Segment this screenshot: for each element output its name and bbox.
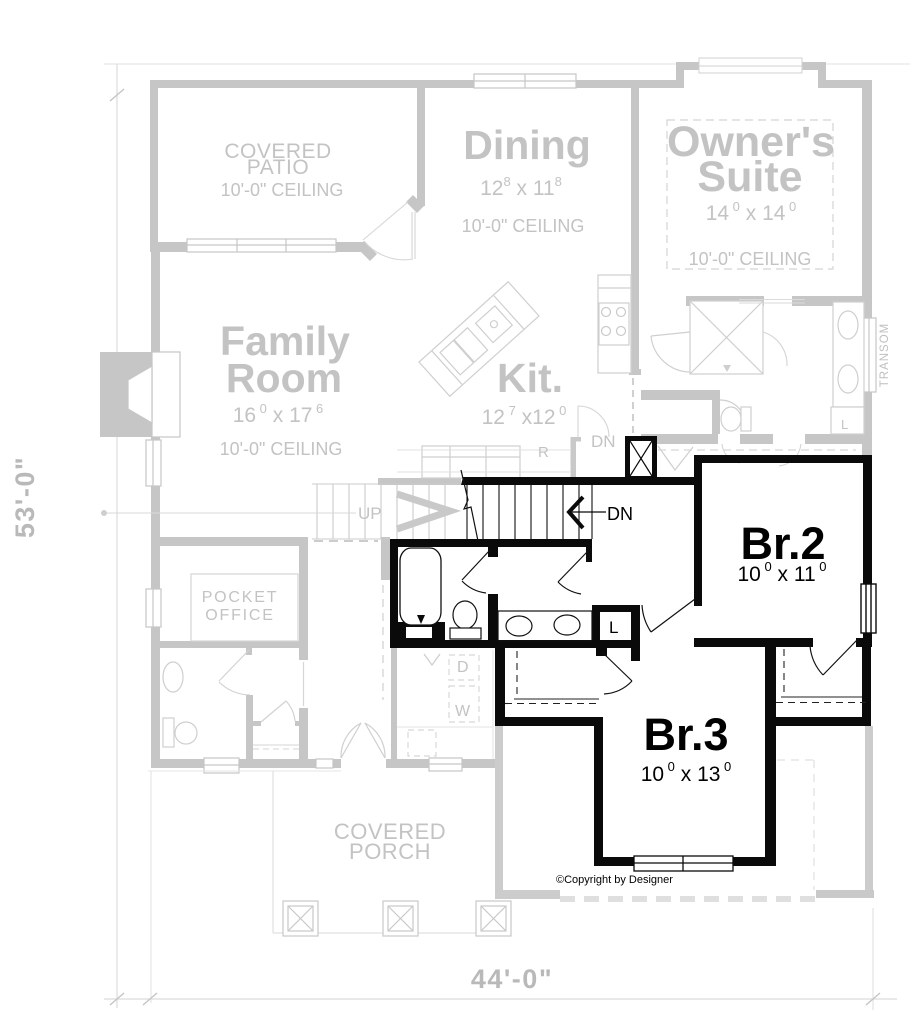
svg-text:10 0 x 13 0: 10 0 x 13 0 bbox=[641, 759, 732, 786]
svg-text:©Copyright by Designer: ©Copyright by Designer bbox=[556, 874, 673, 886]
svg-text:16 0 x 17 6: 16 0 x 17 6 bbox=[233, 401, 324, 427]
svg-text:UP: UP bbox=[358, 504, 382, 523]
svg-text:L: L bbox=[841, 417, 848, 432]
svg-text:TRANSOM: TRANSOM bbox=[879, 323, 891, 388]
svg-text:10'-0" CEILING: 10'-0" CEILING bbox=[689, 249, 812, 269]
svg-text:44'-0": 44'-0" bbox=[471, 964, 553, 994]
svg-text:14 0 x 14 0: 14 0 x 14 0 bbox=[706, 199, 797, 225]
svg-text:W: W bbox=[455, 703, 471, 720]
svg-text:PATIO: PATIO bbox=[247, 156, 309, 179]
svg-text:10'-0" CEILING: 10'-0" CEILING bbox=[462, 216, 585, 236]
svg-text:Room: Room bbox=[226, 355, 342, 401]
svg-text:PORCH: PORCH bbox=[349, 839, 431, 864]
svg-text:Br.3: Br.3 bbox=[643, 709, 728, 760]
svg-text:10 0 x 11 0: 10 0 x 11 0 bbox=[737, 559, 826, 586]
svg-text:R: R bbox=[538, 444, 549, 461]
svg-text:DN: DN bbox=[591, 432, 616, 451]
svg-text:12 7 x12 0: 12 7 x12 0 bbox=[482, 403, 567, 429]
svg-text:D: D bbox=[457, 659, 469, 676]
svg-text:OFFICE: OFFICE bbox=[205, 607, 274, 624]
svg-text:10'-0" CEILING: 10'-0" CEILING bbox=[220, 439, 343, 459]
svg-text:Suite: Suite bbox=[697, 153, 802, 201]
svg-text:POCKET: POCKET bbox=[202, 589, 279, 606]
svg-text:Kit.: Kit. bbox=[497, 355, 563, 401]
svg-text:Dining: Dining bbox=[463, 122, 591, 168]
svg-text:10'-0" CEILING: 10'-0" CEILING bbox=[221, 180, 344, 200]
svg-text:DN: DN bbox=[607, 504, 633, 524]
svg-text:L: L bbox=[609, 618, 618, 637]
svg-text:53'-0": 53'-0" bbox=[10, 456, 40, 538]
svg-text:Br.2: Br.2 bbox=[740, 518, 825, 569]
svg-text:128 x 118: 128 x 118 bbox=[480, 174, 562, 200]
